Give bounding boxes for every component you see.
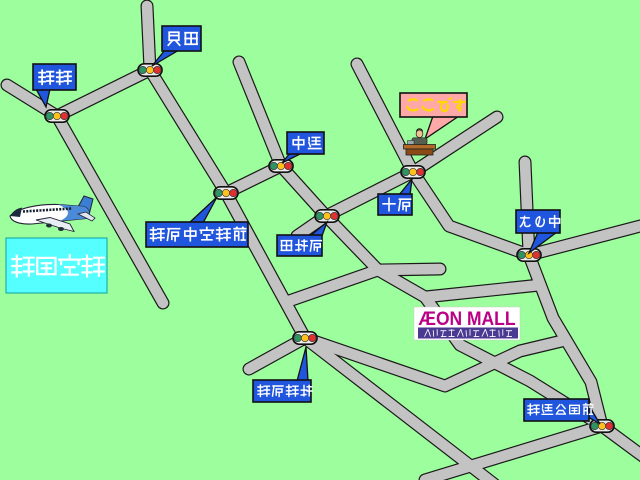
svg-text:ÆON MALL: ÆON MALL: [419, 309, 516, 330]
